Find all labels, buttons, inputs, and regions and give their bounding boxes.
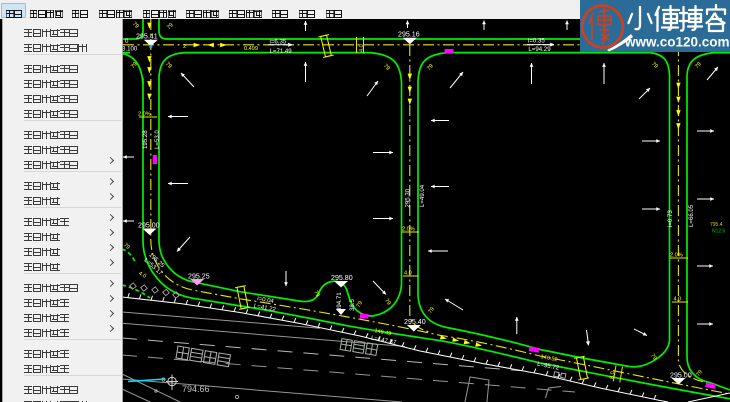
- svg-text:L=49.04: L=49.04: [419, 184, 426, 207]
- svg-text:0.499: 0.499: [244, 46, 258, 52]
- svg-text:295.00: 295.00: [670, 371, 692, 379]
- svg-text:394.71: 394.71: [336, 292, 343, 311]
- svg-text:3.100: 3.100: [122, 46, 138, 53]
- svg-text:295.30: 295.30: [405, 188, 412, 207]
- svg-text:295.40: 295.40: [404, 318, 426, 326]
- svg-text:4.0: 4.0: [137, 271, 147, 280]
- svg-text:L=71.49: L=71.49: [270, 48, 293, 55]
- svg-text:795.4: 795.4: [710, 222, 723, 228]
- svg-text:www.co120.com: www.co120.com: [624, 35, 730, 50]
- svg-text:79: 79: [426, 63, 435, 72]
- svg-text:295.25: 295.25: [188, 272, 210, 280]
- svg-text:L=66.05: L=66.05: [688, 204, 695, 227]
- svg-text:79: 79: [382, 63, 391, 72]
- svg-text:L=53.0: L=53.0: [154, 130, 161, 149]
- svg-text:295.16: 295.16: [398, 31, 420, 39]
- svg-text:38.5: 38.5: [349, 299, 356, 311]
- svg-text:79: 79: [356, 300, 364, 308]
- svg-text:79: 79: [383, 298, 391, 307]
- svg-text:N12.6: N12.6: [712, 229, 726, 235]
- svg-text:295.80: 295.80: [331, 274, 353, 282]
- svg-text:295.00: 295.00: [138, 221, 160, 229]
- svg-text:L=41.22: L=41.22: [253, 303, 277, 314]
- svg-text:794.66: 794.66: [182, 384, 210, 394]
- svg-text:L=94.29: L=94.29: [528, 46, 551, 53]
- svg-text:i=0.73: i=0.73: [667, 210, 674, 227]
- svg-text:295.41: 295.41: [136, 33, 158, 41]
- svg-text:79: 79: [164, 61, 173, 70]
- svg-text:79: 79: [427, 306, 435, 315]
- svg-text:2: 2: [183, 44, 186, 50]
- svg-text:195.28: 195.28: [142, 130, 149, 149]
- svg-text:79: 79: [166, 22, 175, 31]
- svg-text:i=0.35: i=0.35: [528, 37, 545, 44]
- svg-text:79: 79: [694, 61, 703, 70]
- svg-text:79: 79: [650, 61, 659, 70]
- svg-text:4.0: 4.0: [359, 44, 365, 52]
- svg-text:79: 79: [131, 21, 140, 30]
